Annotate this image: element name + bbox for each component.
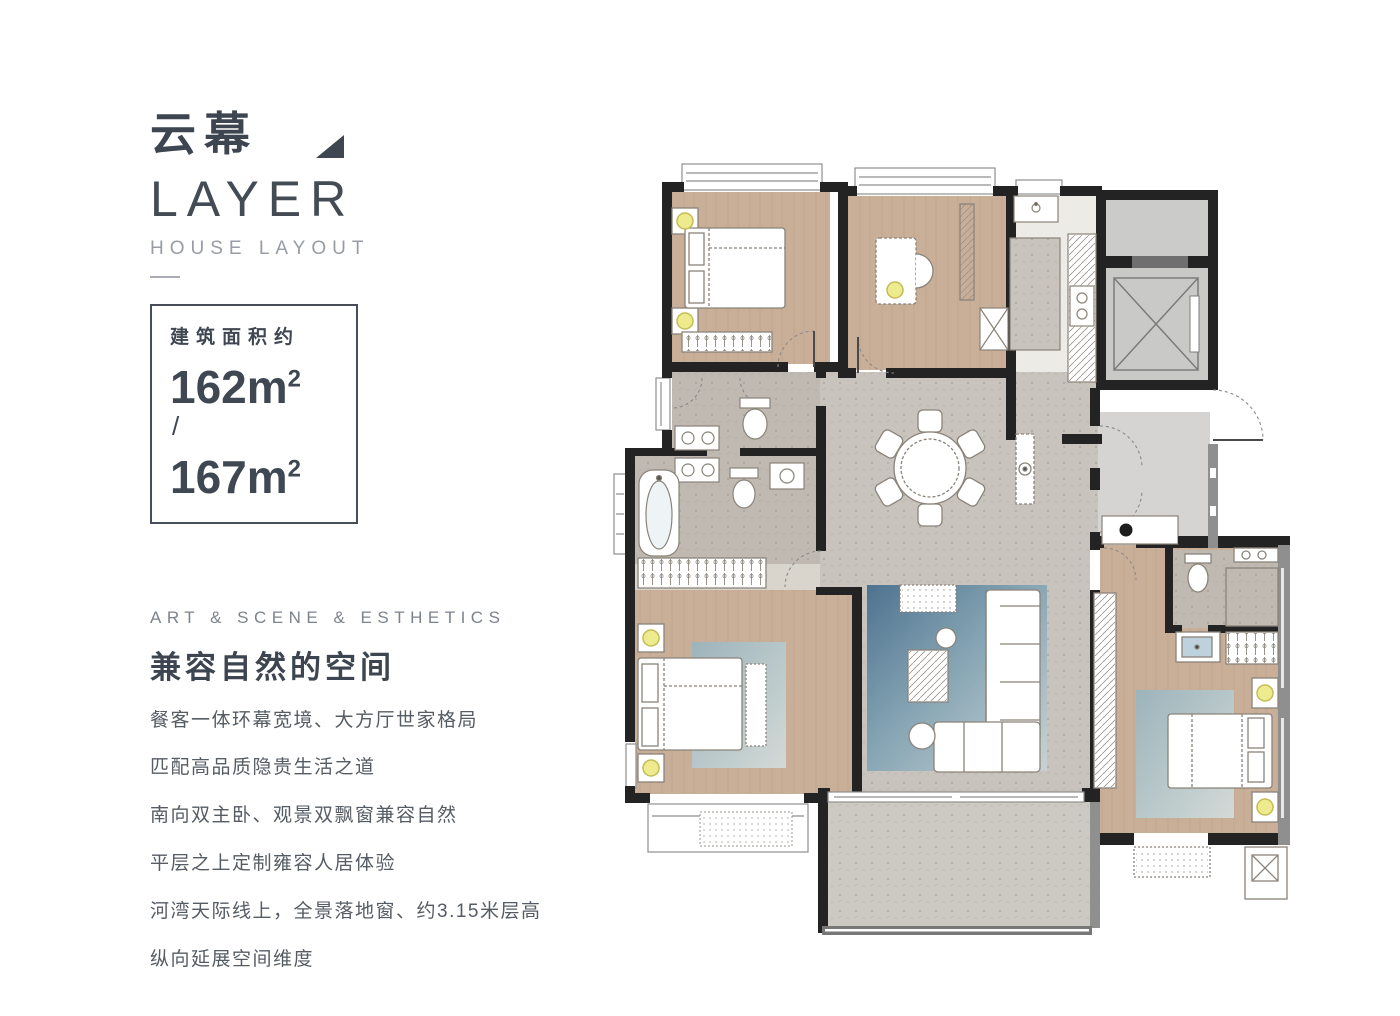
description-line: 餐客一体环幕宽境、大方厅世家格局 [150,711,580,732]
toilet-tank [730,468,758,478]
ceiling-lamp [1257,799,1273,815]
toilet [733,480,755,508]
bay-window [855,168,995,194]
elevator-lobby [1106,200,1208,258]
bed-bench [746,664,766,746]
sofa [986,590,1040,742]
area-box: 建筑面积约 162m2 / 167m2 [150,304,358,524]
brand-subtitle: HOUSE LAYOUT [150,238,580,260]
toilet [743,409,767,439]
ceiling-lamp [1257,685,1273,701]
section-kicker: ART & SCENE & ESTHETICS [150,608,580,628]
study-shelf [960,204,974,300]
sofa-chaise [934,722,1040,772]
cooktop [1070,286,1094,326]
description-line: 南向双主卧、观景双飘窗兼容自然 [150,806,580,827]
wash-basin [770,463,804,489]
decor-bowl [1120,524,1133,537]
info-panel: 云幕 LAYER HOUSE LAYOUT 建筑面积约 162m2 / 167m… [150,98,580,998]
area-separator: / [172,413,338,439]
kitchen-window [1016,180,1062,194]
area-value-1: 162m2 [170,363,338,411]
floor-plan [612,138,1332,948]
toilet-tank [1185,554,1211,563]
side-table [909,723,935,749]
toilet [1188,564,1208,592]
brand-title-zh-row: 云幕 [150,98,580,164]
ceiling-lamp [643,630,659,646]
side-window [656,378,670,430]
ceiling-lamp [677,213,693,229]
divider-rule [150,276,180,278]
description-line: 河湾天际线上，全景落地窗、约3.15米层高 [150,902,580,923]
ceiling-lamp [887,282,903,298]
triangle-accent-icon [316,135,344,158]
dining-table [894,432,966,504]
brand-title-en: LAYER [150,174,580,224]
bath-counter [1234,548,1278,562]
description-paragraphs: 餐客一体环幕宽境、大方厅世家格局 匹配高品质隐贵生活之道 南向双主卧、观景双飘窗… [150,711,580,971]
description-line: 平层之上定制雍容人居体验 [150,854,580,875]
brand-title-zh: 云幕 [150,98,258,164]
shoe-cabinet [1102,516,1178,544]
description-line: 匹配高品质隐贵生活之道 [150,758,580,779]
ceiling-lamp [643,760,659,776]
side-table [936,628,956,648]
section-heading: 兼容自然的空间 [150,642,580,687]
page: { "brand": { "title_zh": "云幕", "title_en… [0,0,1400,1016]
area-label: 建筑面积约 [170,322,338,349]
area-value-2: 167m2 [170,453,338,501]
description-line: 纵向延展空间维度 [150,950,580,971]
side-window [626,744,636,788]
bay-window [682,164,822,190]
ceiling-lamp [677,313,693,329]
kitchen-sink-counter [1014,196,1058,222]
toilet-tank [740,398,770,408]
